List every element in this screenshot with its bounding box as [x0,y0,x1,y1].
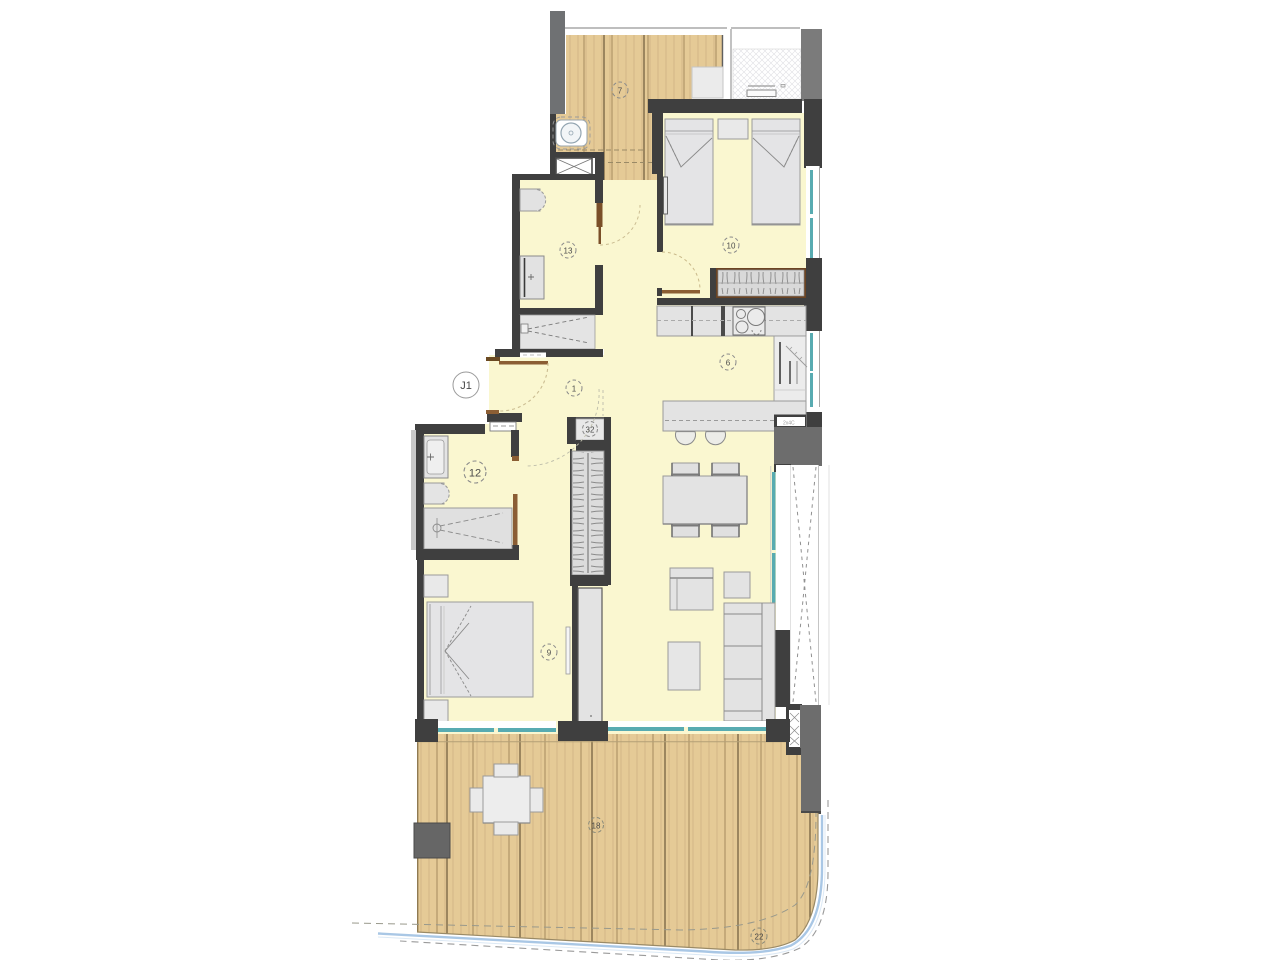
svg-text:2x4C: 2x4C [783,421,795,427]
svg-text:6: 6 [726,359,731,368]
svg-text:1: 1 [572,385,577,394]
svg-text:9: 9 [547,649,552,658]
svg-text:13: 13 [564,247,573,256]
svg-text:10: 10 [727,242,736,251]
svg-text:18: 18 [592,822,601,831]
svg-text:7: 7 [618,87,623,96]
svg-text:J1: J1 [460,380,472,392]
svg-text:22: 22 [755,933,764,942]
svg-text:32: 32 [586,426,595,435]
svg-text:12: 12 [469,468,481,480]
